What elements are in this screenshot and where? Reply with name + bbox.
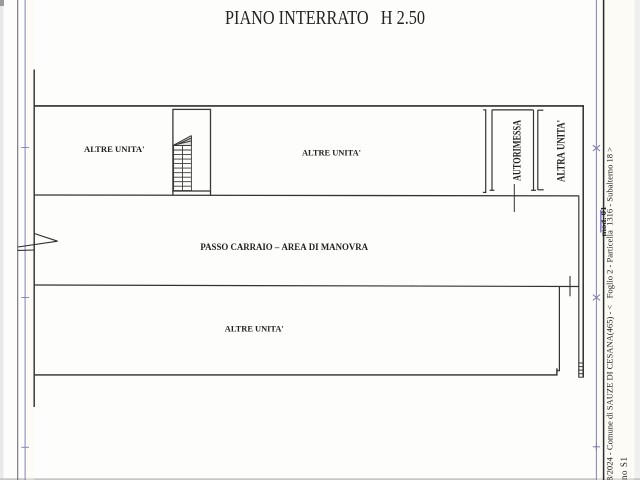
svg-text:ALTRE UNITA': ALTRE UNITA' — [225, 324, 284, 334]
svg-text:ALTRA UNITA': ALTRA UNITA' — [556, 120, 568, 182]
svg-text:mod. 01: mod. 01 — [599, 206, 608, 236]
svg-text:PASSO CARRAIO – AREA DI MANOVR: PASSO CARRAIO – AREA DI MANOVRA — [200, 243, 368, 253]
svg-text:ALTRE UNITA': ALTRE UNITA' — [84, 144, 145, 154]
svg-text:AUTORIMESSA: AUTORIMESSA — [512, 120, 524, 181]
svg-text:ALTRE UNITA': ALTRE UNITA' — [302, 147, 361, 157]
svg-text:no S1: no S1 — [619, 457, 629, 480]
svg-text:8/2024 - Comune di SAUZE DI CE: 8/2024 - Comune di SAUZE DI CESANA(465) … — [605, 147, 615, 480]
svg-text:PIANO INTERRATO H 2.50: PIANO INTERRATO H 2.50 — [225, 7, 425, 29]
